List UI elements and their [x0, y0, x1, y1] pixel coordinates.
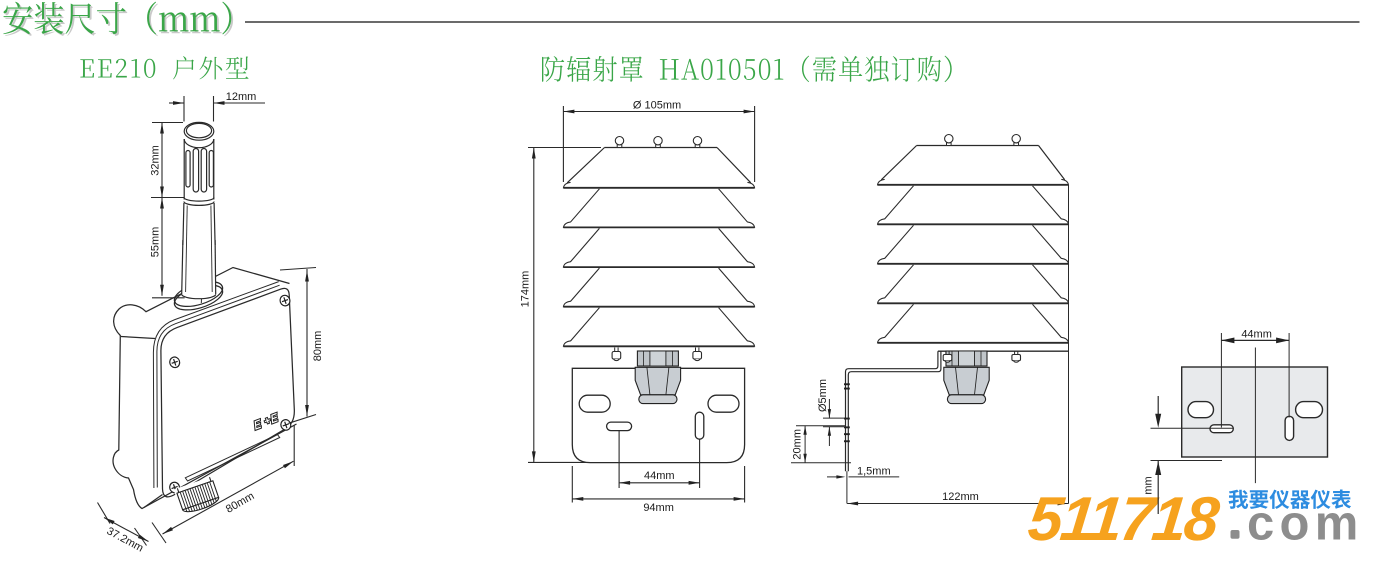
- svg-text:Ø 105mm: Ø 105mm: [633, 100, 681, 112]
- svg-text:1,5mm: 1,5mm: [857, 466, 891, 478]
- svg-text:mm: mm: [1143, 476, 1155, 494]
- svg-text:44mm: 44mm: [644, 470, 675, 482]
- svg-text:511718: 511718: [1025, 485, 1223, 554]
- svg-text:20mm: 20mm: [791, 429, 803, 460]
- svg-text:55mm: 55mm: [150, 227, 162, 258]
- svg-text:12mm: 12mm: [226, 91, 257, 103]
- svg-text:94mm: 94mm: [643, 502, 674, 514]
- svg-text:80mm: 80mm: [312, 331, 324, 362]
- svg-text:44mm: 44mm: [1241, 328, 1272, 340]
- svg-text:37.2mm: 37.2mm: [105, 525, 146, 554]
- svg-text:80mm: 80mm: [224, 490, 256, 516]
- svg-text:Ø5mm: Ø5mm: [817, 379, 829, 412]
- svg-text:32mm: 32mm: [150, 145, 162, 176]
- svg-text:122mm: 122mm: [942, 491, 979, 503]
- svg-text:174mm: 174mm: [520, 271, 532, 308]
